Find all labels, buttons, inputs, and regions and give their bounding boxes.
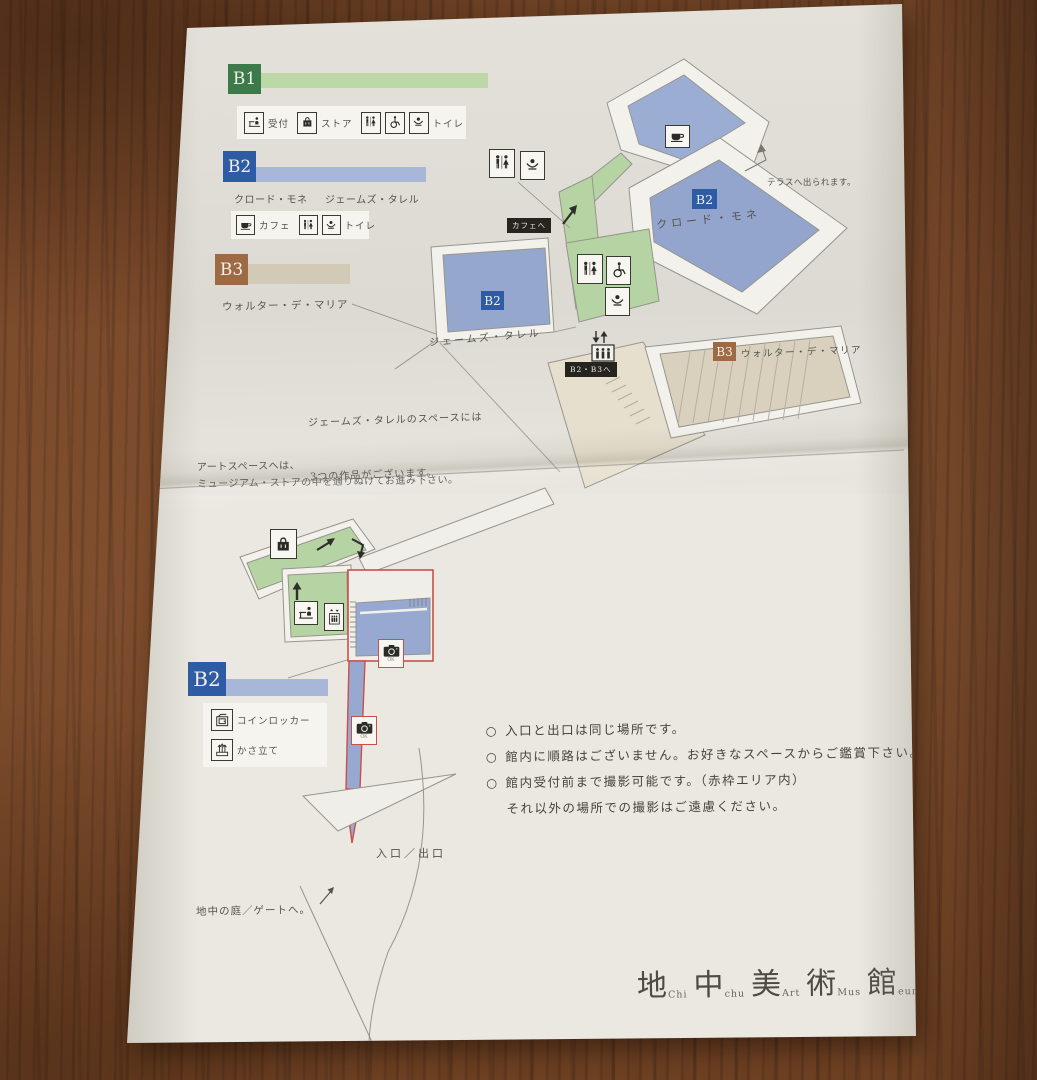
- b3-legend-bar: [248, 264, 350, 284]
- garden-gate-label: 地中の庭／ゲートへ。: [196, 902, 311, 919]
- reception-label: 受付: [268, 116, 289, 130]
- restroom-icon: [299, 215, 318, 235]
- baby-changing-icon: [409, 112, 429, 134]
- logo-latin: Art: [782, 988, 800, 999]
- camera-ok-marker: OK: [378, 639, 404, 668]
- entrance-exit-label: 入口／出口: [376, 845, 446, 861]
- gate-arrow-icon: [328, 887, 335, 894]
- note-text-1: 入口と出口は同じ場所です。: [505, 721, 686, 738]
- camera-icon: [356, 721, 373, 735]
- elevator-icon: [592, 345, 614, 361]
- photo-scene: B1 受付 ストア トイレ B2: [0, 0, 1037, 1080]
- reception-desk-icon: [294, 601, 318, 625]
- note-bullet: ○: [486, 723, 499, 738]
- b1-legend-bar: [256, 73, 488, 88]
- monet-badge-label: B2: [696, 192, 713, 207]
- baby-changing-icon: [605, 287, 630, 316]
- turrell-room-badge: B2: [481, 291, 504, 310]
- museum-floor-map-brochure: B1 受付 ストア トイレ B2: [0, 0, 1037, 1080]
- coin-locker-icon: [211, 709, 233, 731]
- restroom-icon: [577, 254, 603, 284]
- umbrella-stand-label: かさ立て: [237, 743, 279, 757]
- umbrella-stand-icon: [211, 739, 233, 761]
- camera-ok-marker: OK: [351, 716, 377, 745]
- b1-legend-card: 受付 ストア トイレ: [237, 106, 466, 139]
- brochure-wrap: B1 受付 ストア トイレ B2: [0, 0, 1037, 1080]
- b3-badge-label: B3: [220, 260, 243, 280]
- restroom-icon: [489, 149, 515, 178]
- camera-icon: [383, 644, 400, 658]
- note-text-3: 館内受付前まで撮影可能です。（赤枠エリア内）: [505, 772, 806, 790]
- coin-locker-label: コインロッカー: [237, 713, 311, 727]
- b2-legend-bar: [256, 167, 426, 182]
- logo-kanji: 美: [751, 970, 781, 1000]
- camera-ok-label: OK: [387, 658, 394, 663]
- monet-room-badge: B2: [692, 189, 717, 209]
- turrell-note-line1: ジェームズ・タレルのスペースには: [308, 409, 483, 433]
- wheelchair-icon: [606, 256, 631, 285]
- b3-badge: B3: [215, 254, 248, 285]
- toilet-label: トイレ: [433, 116, 465, 130]
- b2-lower-legend-card: コインロッカー かさ立て: [203, 703, 327, 767]
- logo-kanji: 地: [637, 972, 667, 1002]
- b1-badge-label: B1: [233, 69, 256, 89]
- up-arrow-icon: [601, 331, 608, 337]
- b2-badge-label: B2: [228, 157, 251, 177]
- b2-lower-legend-bar: [226, 679, 328, 696]
- de-maria-room-badge: B3: [713, 342, 736, 361]
- coffee-cup-icon: [665, 125, 690, 148]
- camera-ok-label: OK: [360, 735, 367, 740]
- b2-artist-monet: クロード・モネ: [234, 195, 308, 206]
- elevator-icon: [324, 603, 344, 631]
- toilet-label: トイレ: [345, 218, 377, 232]
- wheelchair-icon: [385, 112, 405, 134]
- reception-desk-icon: [244, 112, 264, 134]
- logo-kanji: 術: [806, 969, 836, 999]
- b2-artist-turrell: ジェームズ・タレル: [325, 195, 419, 206]
- b2-artists: クロード・モネ ジェームズ・タレル: [234, 191, 419, 206]
- coffee-cup-icon: [236, 215, 255, 235]
- restroom-icon: [361, 112, 381, 134]
- store-label: ストア: [321, 116, 353, 130]
- note-bullet: ○: [486, 749, 499, 764]
- note-text-4: それ以外の場所での撮影はご遠慮ください。: [506, 798, 786, 816]
- paper-right-shade: [857, 0, 919, 1080]
- cafe-direction-label: カフェへ: [507, 218, 551, 233]
- logo-latin: chu: [724, 989, 745, 1000]
- paper-left-shade: [120, 0, 200, 1080]
- de-maria-badge-label: B3: [716, 345, 732, 359]
- shopping-bag-icon: [270, 529, 297, 559]
- logo-latin: Chi: [668, 989, 688, 1000]
- b1-badge: B1: [228, 64, 261, 94]
- logo-kanji: 中: [693, 971, 723, 1001]
- down-arrow-icon: [593, 338, 600, 344]
- turrell-badge-label: B2: [484, 294, 500, 308]
- cafe-label: カフェ: [259, 218, 291, 232]
- baby-changing-icon: [520, 151, 545, 180]
- entry-path: [303, 774, 456, 831]
- terrace-note: テラスへ出られます。: [767, 176, 856, 188]
- shopping-bag-icon: [297, 112, 317, 134]
- b2-badge: B2: [223, 151, 256, 182]
- b2b3-direction-label: B2・B3へ: [565, 362, 617, 377]
- lower-floor-plan: [240, 519, 456, 1042]
- b2-legend-card: カフェ トイレ: [231, 211, 369, 239]
- note-bullet: ○: [486, 775, 499, 790]
- baby-changing-icon: [322, 215, 341, 235]
- b3-artist: ウォルター・デ・マリア: [222, 297, 349, 314]
